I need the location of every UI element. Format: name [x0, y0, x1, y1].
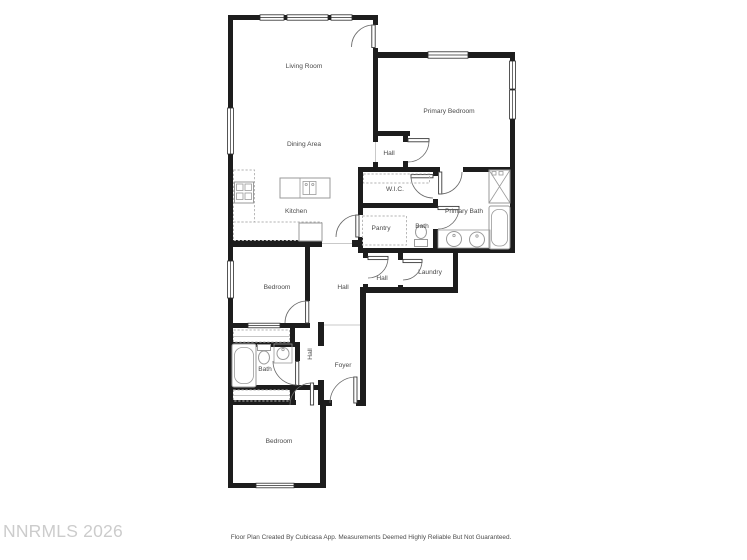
refrigerator-icon	[299, 223, 322, 241]
window	[260, 15, 284, 20]
room-label-hall-middle: Hall	[337, 284, 349, 291]
room-label-laundry: Laundry	[418, 269, 443, 276]
room-label-pantry: Pantry	[371, 225, 391, 232]
walls	[228, 15, 515, 488]
room-label-bedroom-middle: Bedroom	[264, 284, 291, 291]
sink-icon	[470, 232, 485, 247]
room-label-hall-upper: Hall	[383, 150, 395, 157]
room-label-bedroom-lower: Bedroom	[266, 438, 293, 445]
window	[510, 61, 516, 89]
door-bedroom-middle	[285, 301, 309, 323]
stove-icon	[235, 182, 254, 203]
closet	[234, 330, 290, 342]
room-label-water-closet: Bath	[415, 223, 429, 230]
room-label-dining-area: Dining Area	[287, 141, 321, 148]
toilet-icon	[258, 345, 271, 365]
window	[331, 15, 352, 20]
window	[228, 261, 234, 298]
window	[287, 15, 328, 20]
room-label-primary-bedroom: Primary Bedroom	[423, 108, 475, 115]
room-label-wic: W.I.C.	[386, 186, 404, 193]
room-label-foyer: Foyer	[335, 362, 353, 369]
window	[228, 108, 234, 154]
room-label-bath-hall: Bath	[258, 366, 272, 373]
door-pantry	[336, 215, 359, 237]
window	[256, 483, 294, 488]
doors	[273, 25, 462, 405]
floor-plan-drawing: Living Room Dining Area Kitchen Hall Pri…	[0, 0, 747, 560]
closet	[234, 390, 290, 401]
window	[428, 52, 468, 58]
floor-plan-page: Living Room Dining Area Kitchen Hall Pri…	[0, 0, 747, 560]
door-living-room	[352, 25, 376, 48]
room-label-primary-bath: Primary Bath	[445, 208, 483, 215]
mls-watermark: NNRMLS 2026	[3, 521, 123, 541]
sink-icon	[447, 232, 462, 247]
door-hall-to-primary-bedroom	[408, 139, 429, 162]
room-label-kitchen: Kitchen	[285, 208, 307, 215]
floor-plan-disclaimer: Floor Plan Created By Cubicasa App. Meas…	[231, 534, 512, 541]
kitchen-island	[280, 178, 330, 198]
room-label-hall-lower: Hall	[307, 348, 314, 360]
shower-icon	[489, 170, 510, 203]
closet-sliding-door	[248, 323, 280, 328]
vanity-double-sink	[438, 230, 490, 248]
room-label-hall-small: Hall	[376, 275, 388, 282]
room-label-living-room: Living Room	[286, 63, 323, 70]
door-bath-hall	[273, 361, 299, 385]
bathtub-icon	[489, 206, 510, 249]
door-front-entry	[330, 377, 357, 403]
window	[510, 90, 516, 119]
door-primary-bedroom-to-primary-bath	[439, 172, 462, 194]
bathtub-icon	[232, 344, 256, 387]
